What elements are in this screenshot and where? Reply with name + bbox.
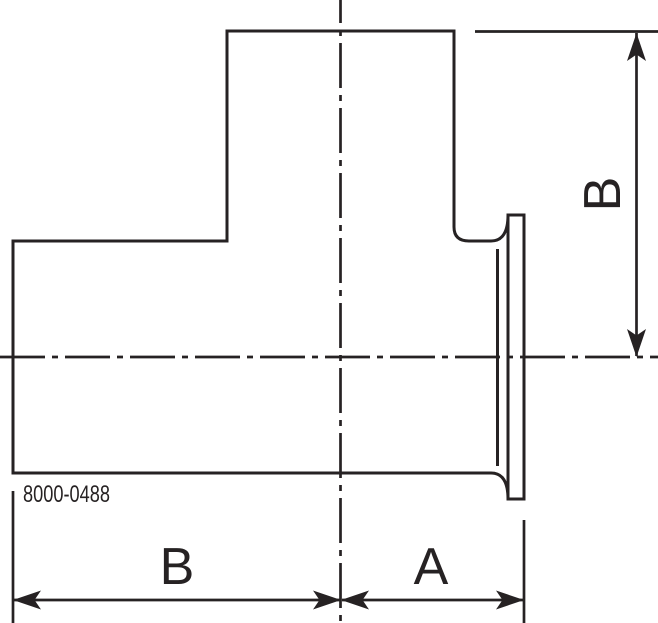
- technical-drawing-page: B B A 8000-0488: [0, 0, 658, 623]
- dim-label-a-horizontal: A: [414, 538, 449, 596]
- dim-label-b-vertical: B: [574, 177, 632, 212]
- dim-label-b-horizontal: B: [160, 538, 195, 596]
- drawing-canvas: B B A 8000-0488: [0, 0, 658, 623]
- tee-body-outline: [13, 31, 524, 499]
- part-number-label: 8000-0488: [23, 481, 110, 508]
